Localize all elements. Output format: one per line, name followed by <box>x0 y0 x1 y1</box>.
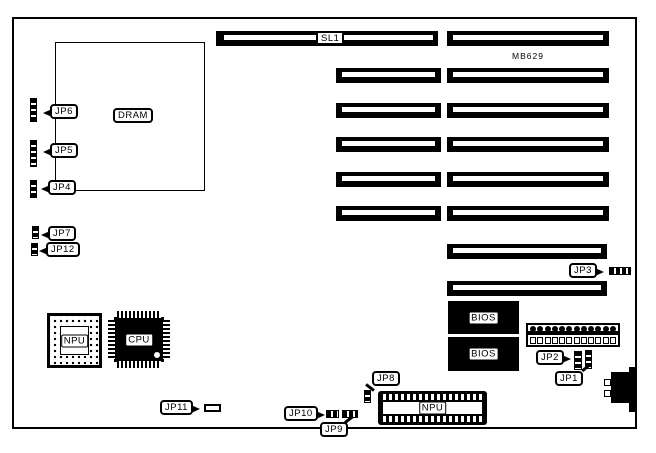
power-pin-round <box>545 326 551 332</box>
callout-arrow-icon <box>41 231 50 239</box>
callout-arrow-icon <box>191 405 200 413</box>
model-label: MB629 <box>512 51 544 61</box>
power-pin-square <box>559 337 565 344</box>
power-pin-square <box>595 337 601 344</box>
dram-label-text: DRAM <box>118 110 148 121</box>
power-pin-round <box>595 326 601 332</box>
npu-socket-pins-bottom <box>383 416 482 422</box>
slot-contact-stripe <box>453 35 603 40</box>
slot-contact-stripe <box>453 141 603 146</box>
expansion-slot <box>336 103 441 118</box>
jumper-jp12 <box>31 243 38 256</box>
expansion-slot <box>336 172 441 187</box>
bios-chip-1: BIOS <box>448 301 519 334</box>
callout-arrow-icon <box>562 355 571 363</box>
keyboard-connector-body <box>611 372 631 403</box>
jp12-label: JP12 <box>46 242 80 257</box>
power-pin-round <box>537 326 543 332</box>
jp4-label: JP4 <box>48 180 76 195</box>
expansion-slot <box>336 206 441 221</box>
jp10-label: JP10 <box>284 406 318 421</box>
slot-contact-stripe <box>342 176 435 181</box>
power-pin-square <box>574 337 580 344</box>
power-pin-square <box>566 337 572 344</box>
power-pin-square <box>610 337 616 344</box>
bios-chip-2: BIOS <box>448 337 519 371</box>
power-pin-round <box>552 326 558 332</box>
jp5-label-text: JP5 <box>55 145 73 156</box>
expansion-slot <box>336 68 441 83</box>
expansion-slot <box>447 281 607 296</box>
power-pin-round <box>588 326 594 332</box>
bios2-label: BIOS <box>468 348 499 361</box>
cpu-pins-bottom <box>117 361 161 368</box>
jumper-jp10 <box>326 410 339 418</box>
expansion-slot <box>447 206 609 221</box>
jp5-label: JP5 <box>50 143 78 158</box>
power-pin-square <box>545 337 551 344</box>
npu-chip-label: NPU <box>61 334 89 347</box>
jumper-jp11 <box>204 404 221 412</box>
power-pin-round <box>566 326 572 332</box>
jumper-jp4 <box>30 180 37 198</box>
expansion-slot <box>447 31 609 46</box>
jumper-jp2 <box>574 351 582 370</box>
jumper-jp3 <box>609 267 631 275</box>
keyboard-connector-shield <box>629 367 637 412</box>
expansion-slot <box>447 68 609 83</box>
callout-arrow-icon <box>595 268 604 276</box>
slot-contact-stripe <box>453 176 603 181</box>
expansion-slot <box>447 137 609 152</box>
jp7-label-text: JP7 <box>53 228 71 239</box>
slot-contact-stripe <box>342 72 435 77</box>
sl1-label-text: SL1 <box>321 33 339 44</box>
power-pin-round <box>574 326 580 332</box>
cpu-pins-top <box>117 311 161 318</box>
power-pin-round <box>559 326 565 332</box>
jp7-label: JP7 <box>48 226 76 241</box>
jp12-label-text: JP12 <box>51 244 75 255</box>
power-pin-round <box>581 326 587 332</box>
jp10-label-text: JP10 <box>289 408 313 419</box>
slot-contact-stripe <box>342 107 435 112</box>
power-pin-square <box>581 337 587 344</box>
power-connector-pins-top <box>530 326 616 332</box>
power-pin-square <box>537 337 543 344</box>
power-pin-square <box>588 337 594 344</box>
keyboard-connector-pin <box>604 390 611 397</box>
callout-arrow-icon <box>41 185 50 193</box>
jp6-label-text: JP6 <box>55 106 73 117</box>
cpu-chip-label: CPU <box>125 333 153 346</box>
power-pin-round <box>530 326 536 332</box>
callout-arrow-icon <box>43 148 52 156</box>
bios1-label: BIOS <box>468 311 499 324</box>
slot-contact-stripe <box>453 72 603 77</box>
jp9-label-text: JP9 <box>325 424 343 435</box>
slot-contact-stripe <box>453 248 601 253</box>
jumper-jp5 <box>30 140 37 167</box>
jumper-jp8 <box>364 390 371 403</box>
jp11-label: JP11 <box>160 400 193 415</box>
jp8-label-text: JP8 <box>377 373 395 384</box>
expansion-slot <box>447 244 607 259</box>
bios2-label-text: BIOS <box>471 349 496 360</box>
jumper-jp7 <box>32 226 39 239</box>
dram-label: DRAM <box>113 108 153 123</box>
callout-arrow-icon <box>316 411 325 419</box>
npu-socket: NPU <box>378 391 487 425</box>
jp1-label: JP1 <box>555 371 583 386</box>
jp3-label-text: JP3 <box>574 265 592 276</box>
npu-socket-label-text: NPU <box>422 403 444 414</box>
power-connector <box>526 323 620 347</box>
expansion-slot <box>447 103 609 118</box>
slot-contact-stripe <box>453 210 603 215</box>
jp8-label: JP8 <box>372 371 400 386</box>
chip-npu: NPU <box>47 313 102 368</box>
slot-contact-stripe <box>453 285 601 290</box>
jp6-label: JP6 <box>50 104 78 119</box>
expansion-slot <box>336 137 441 152</box>
jp2-label: JP2 <box>536 350 564 365</box>
power-pin-square <box>552 337 558 344</box>
callout-arrow-icon <box>39 247 48 255</box>
cpu-pins-left <box>108 320 115 359</box>
cpu-pin1-dot <box>154 352 160 358</box>
slot-contact-stripe <box>342 210 435 215</box>
jp2-label-text: JP2 <box>541 352 559 363</box>
cpu-pins-right <box>163 320 170 359</box>
jp1-label-text: JP1 <box>560 373 578 384</box>
power-pin-square <box>530 337 536 344</box>
sl1-label: SL1 <box>316 31 344 45</box>
power-connector-pins-bottom <box>530 337 616 344</box>
npu-chip-label-text: NPU <box>64 335 86 346</box>
bios1-label-text: BIOS <box>471 312 496 323</box>
expansion-slot <box>447 172 609 187</box>
keyboard-connector-pin <box>604 379 611 386</box>
jp9-label: JP9 <box>320 422 348 437</box>
power-pin-round <box>610 326 616 332</box>
jp4-label-text: JP4 <box>53 182 71 193</box>
chip-cpu: CPU <box>108 311 170 368</box>
power-pin-square <box>603 337 609 344</box>
jp3-label: JP3 <box>569 263 597 278</box>
cpu-chip-label-text: CPU <box>128 334 150 345</box>
model-label-text: MB629 <box>512 51 544 61</box>
slot-contact-stripe <box>453 107 603 112</box>
jumper-jp6 <box>30 98 37 122</box>
npu-socket-label: NPU <box>419 402 447 415</box>
jp11-label-text: JP11 <box>165 402 188 413</box>
slot-contact-stripe <box>342 141 435 146</box>
power-pin-round <box>603 326 609 332</box>
callout-arrow-icon <box>43 109 52 117</box>
